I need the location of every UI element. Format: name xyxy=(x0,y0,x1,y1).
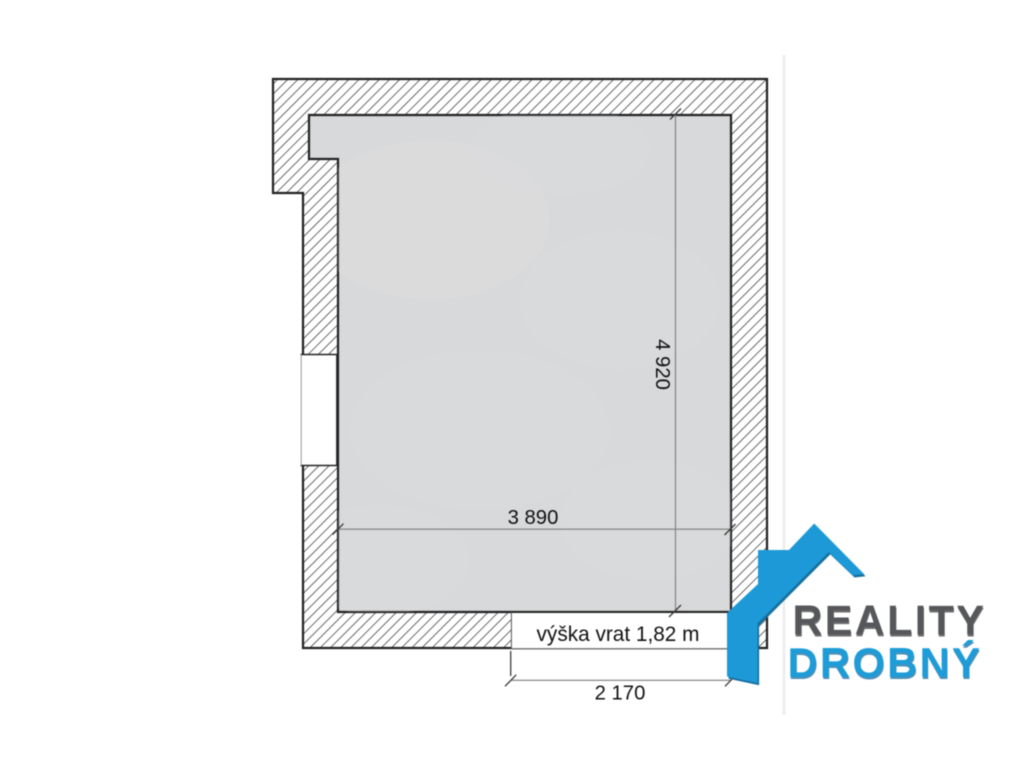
svg-text:3 890: 3 890 xyxy=(508,507,559,529)
svg-text:4 920: 4 920 xyxy=(651,339,673,390)
svg-text:2 170: 2 170 xyxy=(595,683,646,705)
svg-text:výška vrat 1,82 m: výška vrat 1,82 m xyxy=(537,623,700,646)
svg-text:REALITY: REALITY xyxy=(793,598,987,644)
svg-text:DROBNÝ: DROBNÝ xyxy=(788,639,983,686)
